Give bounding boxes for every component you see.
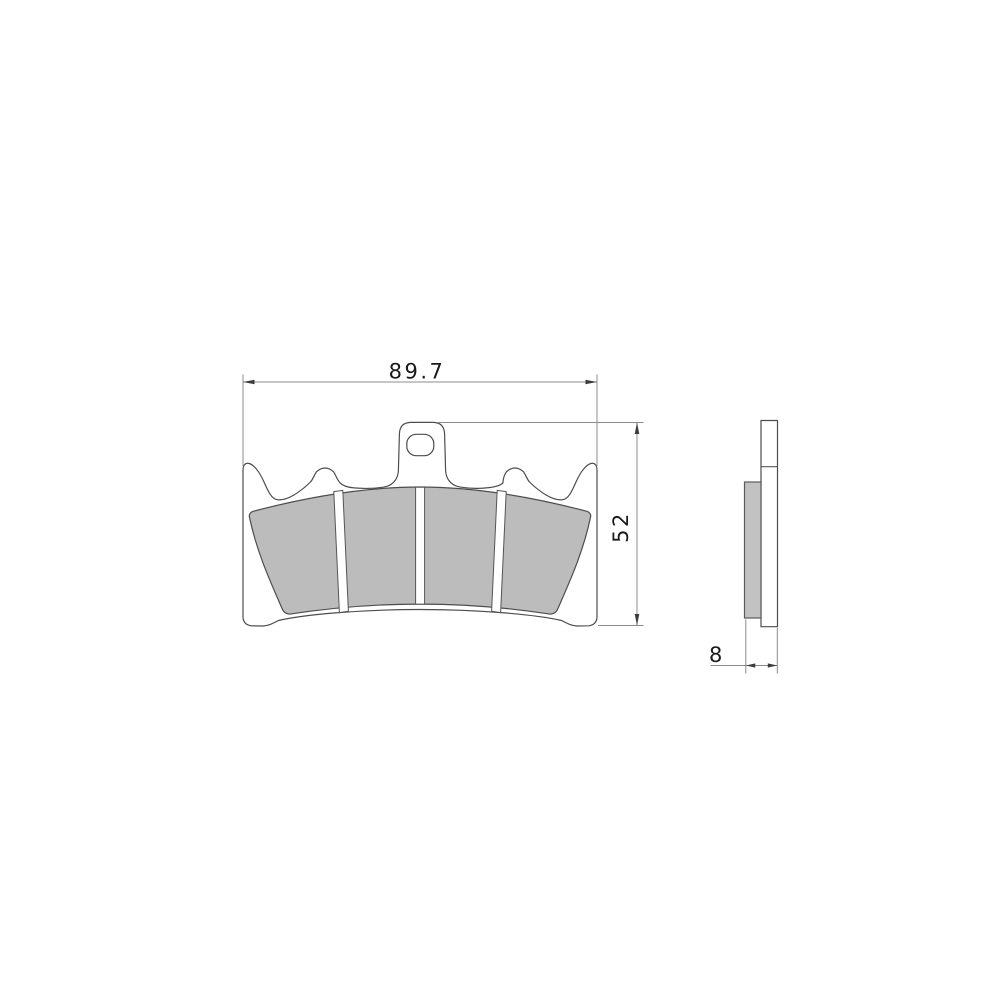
width-dimension-label: 89.7: [389, 360, 446, 384]
height-dimension-label: 52: [609, 511, 633, 543]
height-arrow-bottom: [635, 614, 640, 626]
thickness-dimension-label: 8: [709, 643, 725, 667]
height-arrow-top: [635, 423, 640, 435]
side-friction-material: [745, 482, 762, 618]
thickness-arrow-left: [746, 663, 756, 667]
width-arrow-left: [243, 380, 255, 385]
thickness-arrow-right: [768, 663, 778, 667]
side-backing-plate: [761, 421, 778, 627]
thickness-dimension: 8: [709, 620, 777, 674]
brake-pad-drawing: 89.7 52 8: [0, 0, 1000, 1000]
side-view: [745, 421, 778, 627]
front-view: [243, 422, 597, 626]
width-arrow-right: [586, 380, 598, 385]
mounting-hole: [407, 434, 434, 455]
friction-slot-center: [416, 487, 425, 604]
